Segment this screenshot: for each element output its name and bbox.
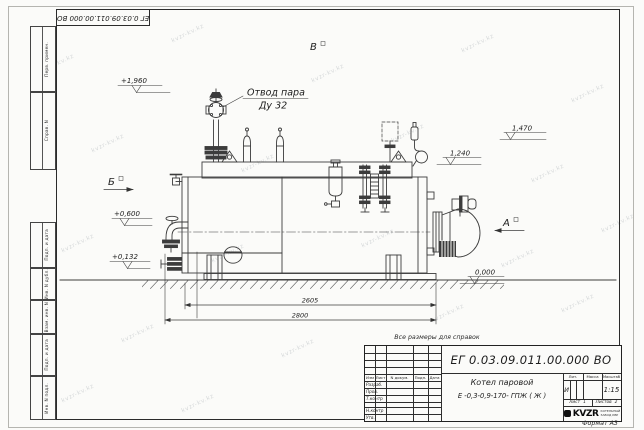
view-v-subscript-box <box>321 42 325 46</box>
support-leg <box>207 255 222 280</box>
dimension-2800: 2800 <box>292 312 309 320</box>
lit-header: Лит. <box>563 373 583 380</box>
elevation-gauge: 1,470 <box>512 125 533 133</box>
support-leg <box>386 255 401 280</box>
dimension-2605: 2605 <box>302 297 319 305</box>
reference-note: Все размеры для справок <box>352 334 522 341</box>
gear-icon <box>564 410 571 417</box>
row-prov: Пров. <box>366 388 388 395</box>
lit-value: И <box>563 380 570 399</box>
masshtab-header: Масштаб <box>602 373 621 380</box>
feed-water-elbow <box>163 216 189 252</box>
col-n-dokum: N докум. <box>386 374 413 381</box>
elevation-ground: 0,000 <box>475 269 496 277</box>
view-b-label: Б <box>108 177 115 188</box>
steam-outlet-valve <box>205 89 227 162</box>
elevation-marks <box>110 86 546 284</box>
strainer <box>325 160 343 207</box>
safety-valve <box>244 128 251 162</box>
drain-fitting <box>161 258 182 271</box>
row-utv: Утв. <box>366 414 388 421</box>
org-logo-cell: KVZR КОТЕЛЬНЫЙ ЗАВОД КВР <box>563 406 621 421</box>
front-top-valve <box>171 175 183 186</box>
view-a-label: А <box>502 218 510 229</box>
title-block: Изм Лист N докум. Подп. Дата Разраб. Про… <box>364 345 622 422</box>
row-n-kontr: Н.контр <box>366 407 388 414</box>
manhole <box>224 247 242 263</box>
format-label: Формат А3 <box>560 420 640 427</box>
sheet-number: Лист 1 <box>563 399 592 406</box>
row-t-kontr: Т.контр <box>366 395 388 402</box>
col-izm: Изм <box>365 374 375 381</box>
elevation-top: +1,960 <box>121 77 147 85</box>
elevation-burner: 1,240 <box>450 150 471 158</box>
elevation-feed: +0,600 <box>114 210 140 218</box>
masshtab-value: 1:15 <box>602 380 621 399</box>
drawing-sheet: kvzr-kv.kz kvzr-kv.kz kvzr-kv.kz kvzr-kv… <box>0 0 644 430</box>
lifting-lug <box>391 151 406 162</box>
view-a-subscript-box <box>514 218 518 222</box>
ground-hatch <box>142 280 504 289</box>
steam-drum <box>202 162 412 178</box>
safety-valve <box>277 128 284 162</box>
pressure-gauge-siphon <box>411 123 428 167</box>
massa-header: Масса <box>583 373 602 380</box>
listov-value: 2 <box>615 400 618 405</box>
elevation-drain: +0,132 <box>112 253 138 261</box>
col-data: Дата <box>428 374 441 381</box>
phantom-fitting <box>382 122 398 141</box>
callout-steam-outlet: Отвод пара <box>247 88 305 99</box>
col-list: Лист <box>375 374 386 381</box>
list-label: Лист <box>569 400 580 405</box>
callout-leader <box>223 96 243 107</box>
view-b-subscript-box <box>119 177 123 181</box>
list-value: 1 <box>583 400 586 405</box>
org-name: КОТЕЛЬНЫЙ ЗАВОД КВР <box>601 410 621 417</box>
sheets-total: Листов 2 <box>592 399 621 406</box>
col-podp: Подп. <box>413 374 428 381</box>
listov-label: Листов <box>596 400 612 405</box>
product-designation: Е -0,3-0,9-170- ГПЖ ( Ж ) <box>441 390 563 401</box>
kvzr-logo: KVZR <box>573 409 599 419</box>
product-name: Котел паровой <box>441 376 563 389</box>
row-razrab: Разраб. <box>366 381 388 388</box>
doc-number: ЕГ 0.03.09.011.00.000 ВО <box>441 346 621 373</box>
callout-steam-outlet-dn: Ду 32 <box>258 101 287 112</box>
massa-value <box>583 380 602 399</box>
burner <box>433 196 480 257</box>
view-v-label: В <box>310 42 317 53</box>
org-line2: ЗАВОД КВР <box>601 414 621 418</box>
water-level-column <box>360 165 391 212</box>
